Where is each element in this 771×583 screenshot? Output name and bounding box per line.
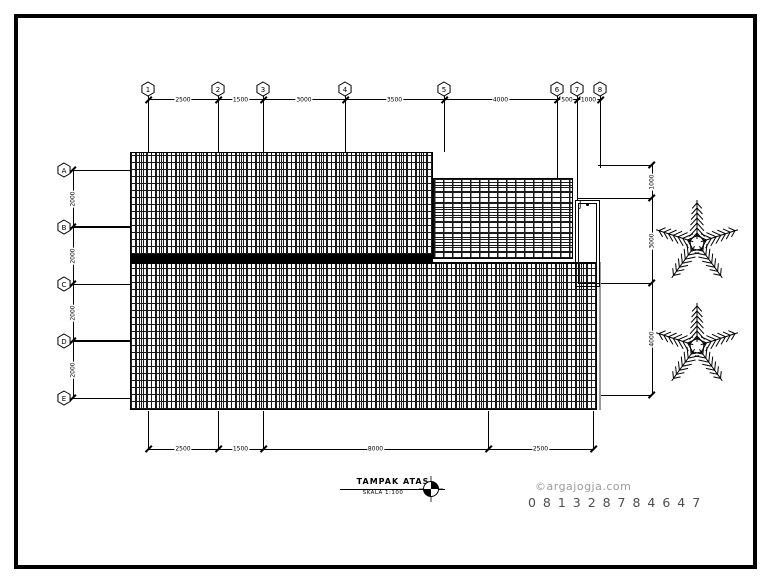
grid-bubble-top: 6 xyxy=(549,81,565,97)
dim-label-left: 2000 xyxy=(69,190,76,207)
grid-bubble-top: 8 xyxy=(592,81,608,97)
extension-line-right xyxy=(577,198,652,199)
watermark-phone: 0 8 1 3 2 8 7 8 4 6 4 7 xyxy=(528,495,702,510)
grid-bubble-top: 1 xyxy=(140,81,156,97)
grid-bubble-label: 8 xyxy=(592,86,608,94)
roof-secondary-slope xyxy=(433,178,573,259)
grid-bubble-top: 3 xyxy=(255,81,271,97)
grid-line-vertical xyxy=(263,96,264,152)
dim-label-top: 4000 xyxy=(492,96,509,103)
extension-line-left xyxy=(72,340,130,342)
extension-line-left xyxy=(72,284,130,285)
grid-bubble-left: D xyxy=(56,333,72,349)
roof-ridge-band xyxy=(130,255,433,262)
dim-label-top: 3500 xyxy=(386,96,403,103)
extension-line-left xyxy=(72,398,130,399)
roof-upper-slope xyxy=(130,152,433,255)
grid-bubble-left: C xyxy=(56,276,72,292)
grid-bubble-label: D xyxy=(56,338,72,346)
dim-label-top: 500 xyxy=(560,96,573,103)
grid-bubble-label: C xyxy=(56,281,72,289)
dim-label-left: 2000 xyxy=(69,361,76,378)
grid-bubble-label: 6 xyxy=(549,86,565,94)
grid-line-vertical xyxy=(600,96,601,168)
drawing-canvas: 12500215003300043500540006500710008A2000… xyxy=(0,0,771,583)
watermark-site: ©argajogja.com xyxy=(535,480,631,493)
hook-symbol: ʃ xyxy=(579,201,582,210)
dim-label-top: 3000 xyxy=(295,96,312,103)
extension-line-bottom xyxy=(593,411,594,449)
grid-bubble-label: 2 xyxy=(210,86,226,94)
dim-label-right: 1000 xyxy=(648,173,655,190)
grid-bubble-top: 5 xyxy=(436,81,452,97)
north-arrow-icon xyxy=(419,476,443,502)
extension-line-right xyxy=(598,165,652,166)
grid-line-vertical xyxy=(345,96,346,152)
tree-icon xyxy=(649,195,745,291)
dim-label-top: 2500 xyxy=(174,96,191,103)
canopy-outline xyxy=(575,200,600,287)
hook-symbol-dot xyxy=(586,203,589,206)
grid-bubble-label: E xyxy=(56,395,72,403)
extension-line-left xyxy=(72,170,130,171)
grid-bubble-top: 2 xyxy=(210,81,226,97)
grid-bubble-left: B xyxy=(56,219,72,235)
grid-bubble-label: 5 xyxy=(436,86,452,94)
grid-line-vertical xyxy=(577,96,578,200)
canopy-outline-inner xyxy=(578,203,597,284)
grid-bubble-label: A xyxy=(56,167,72,175)
grid-bubble-label: 3 xyxy=(255,86,271,94)
grid-bubble-top: 4 xyxy=(337,81,353,97)
drawing-scale: SKALA 1:100 xyxy=(343,490,423,496)
extension-line-bottom xyxy=(148,411,149,449)
grid-bubble-label: B xyxy=(56,224,72,232)
dim-label-bottom: 1500 xyxy=(232,446,249,453)
extension-line-right xyxy=(600,395,652,396)
grid-line-vertical xyxy=(557,96,558,178)
grid-bubble-label: 7 xyxy=(569,86,585,94)
extension-line-bottom xyxy=(218,411,219,449)
grid-line-vertical xyxy=(444,96,445,152)
dim-label-bottom: 2500 xyxy=(532,446,549,453)
dim-label-bottom: 8000 xyxy=(367,446,384,453)
extension-line-bottom xyxy=(488,411,489,449)
grid-bubble-label: 1 xyxy=(140,86,156,94)
grid-bubble-top: 7 xyxy=(569,81,585,97)
dim-label-top: 1000 xyxy=(580,96,597,103)
grid-bubble-left: E xyxy=(56,390,72,406)
dim-label-left: 2000 xyxy=(69,304,76,321)
roof-lower-slope xyxy=(130,262,597,410)
dim-label-left: 2000 xyxy=(69,247,76,264)
extension-line-bottom xyxy=(263,411,264,449)
dim-label-top: 1500 xyxy=(232,96,249,103)
grid-bubble-left: A xyxy=(56,162,72,178)
grid-bubble-label: 4 xyxy=(337,86,353,94)
grid-line-vertical xyxy=(148,96,149,152)
tree-icon xyxy=(649,298,745,394)
extension-line-left xyxy=(72,226,130,228)
grid-line-vertical xyxy=(218,96,219,152)
dim-label-bottom: 2500 xyxy=(174,446,191,453)
